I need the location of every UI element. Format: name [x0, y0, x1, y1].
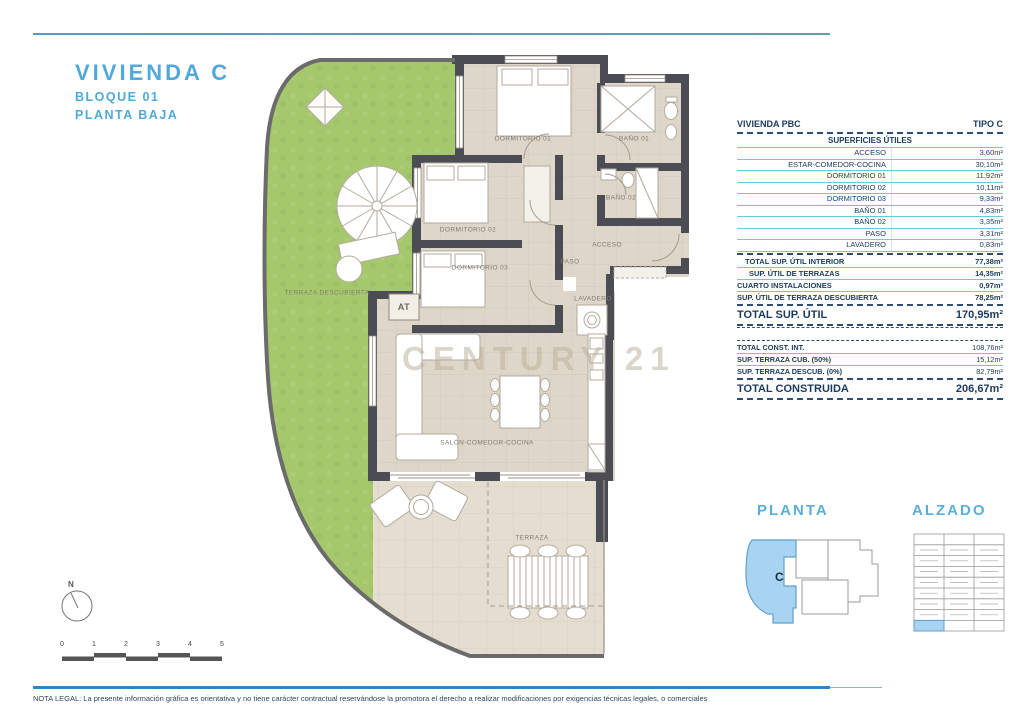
room-label-paso: PASO	[560, 259, 579, 266]
table-row: BAÑO 023,35m²	[737, 217, 1003, 229]
table-row: ESTAR-COMEDOR-COCINA30,10m²	[737, 160, 1003, 172]
watermark: CENTURY 21	[402, 340, 676, 378]
table-row: PASO3,31m²	[737, 229, 1003, 241]
construida-row: SUP. TERRAZA CUB. (50%)15,12m²	[737, 354, 1003, 366]
room-label-bano-01: BAÑO 01	[619, 136, 649, 143]
scale-tick: 0	[60, 641, 64, 648]
alzado-keyplan	[906, 524, 1016, 636]
room-label-terraza-descubierta: TERRAZA DESCUBIERTA	[284, 290, 369, 297]
plan-sheet: VIVIENDA C BLOQUE 01 PLANTA BAJA	[0, 0, 1024, 722]
separator	[737, 324, 1003, 326]
separator	[737, 253, 1003, 255]
surface-table: VIVIENDA PBC TIPO C SUPERFICIES ÚTILES A…	[737, 119, 1003, 401]
table-row: DORMITORIO 0111,92m²	[737, 171, 1003, 183]
construida-row: TOTAL CONST. INT.108,76m²	[737, 342, 1003, 354]
room-label-terraza: TERRAZA	[515, 535, 548, 542]
table-row: DORMITORIO 0210,11m²	[737, 183, 1003, 195]
room-label-at: AT	[398, 302, 410, 312]
table-header: VIVIENDA PBC TIPO C	[737, 119, 1003, 134]
subtotal-row: SUP. ÚTIL DE TERRAZA DESCUBIERTA78,25m²	[737, 292, 1003, 303]
bottom-rule	[33, 686, 830, 689]
alzado-title: ALZADO	[912, 502, 987, 519]
room-label-dormitorio-01: DORMITORIO 01	[495, 136, 551, 143]
separator	[737, 378, 1003, 380]
table-header-left: VIVIENDA PBC	[737, 119, 801, 129]
room-label-dormitorio-02: DORMITORIO 02	[440, 227, 496, 234]
table-section-title: SUPERFICIES ÚTILES	[737, 134, 1003, 148]
scale-bar	[62, 653, 222, 661]
subtotal-row: TOTAL SUP. ÚTIL INTERIOR77,38m²	[737, 256, 1003, 268]
separator	[737, 398, 1003, 400]
total-util-row: TOTAL SUP. ÚTIL170,95m²	[737, 307, 1003, 323]
legal-note: NOTA LEGAL: La presente información gráf…	[33, 694, 883, 703]
scale-tick: 5	[220, 641, 224, 648]
table-row: DORMITORIO 039,33m²	[737, 194, 1003, 206]
north-compass	[62, 591, 92, 621]
table-row: LAVADERO0,83m²	[737, 240, 1003, 252]
bottom-rule-extension	[830, 687, 882, 688]
room-label-bano-02: BAÑO 02	[606, 195, 636, 202]
table-header-right: TIPO C	[973, 119, 1003, 129]
north-label: N	[68, 580, 74, 589]
total-construida-row: TOTAL CONSTRUIDA206,67m²	[737, 381, 1003, 397]
scale-tick: 2	[124, 641, 128, 648]
construida-row: SUP. TERRAZA DESCUB. (0%)82,79m²	[737, 366, 1003, 377]
scale-tick: 1	[92, 641, 96, 648]
table-row: BAÑO 014,83m²	[737, 206, 1003, 218]
room-label-dormitorio-03: DORMITORIO 03	[452, 265, 508, 272]
room-label-salon: SALÓN-COMEDOR-COCINA	[440, 440, 534, 447]
subtotal-row: SUP. ÚTIL DE TERRAZAS14,35m²	[737, 268, 1003, 280]
separator	[737, 327, 1003, 328]
scale-tick: 3	[156, 641, 160, 648]
separator	[737, 304, 1003, 306]
planta-title: PLANTA	[757, 502, 829, 519]
separator	[737, 340, 1003, 341]
subtotal-row: CUARTO INSTALACIONES0,97m²	[737, 280, 1003, 292]
scale-tick: 4	[188, 641, 192, 648]
planta-keyplan	[738, 524, 888, 634]
unit-letter: C	[775, 570, 784, 584]
table-row: ACCESO3,60m²	[737, 148, 1003, 160]
room-label-acceso: ACCESO	[592, 242, 622, 249]
room-label-lavadero: LAVADERO	[574, 296, 612, 303]
